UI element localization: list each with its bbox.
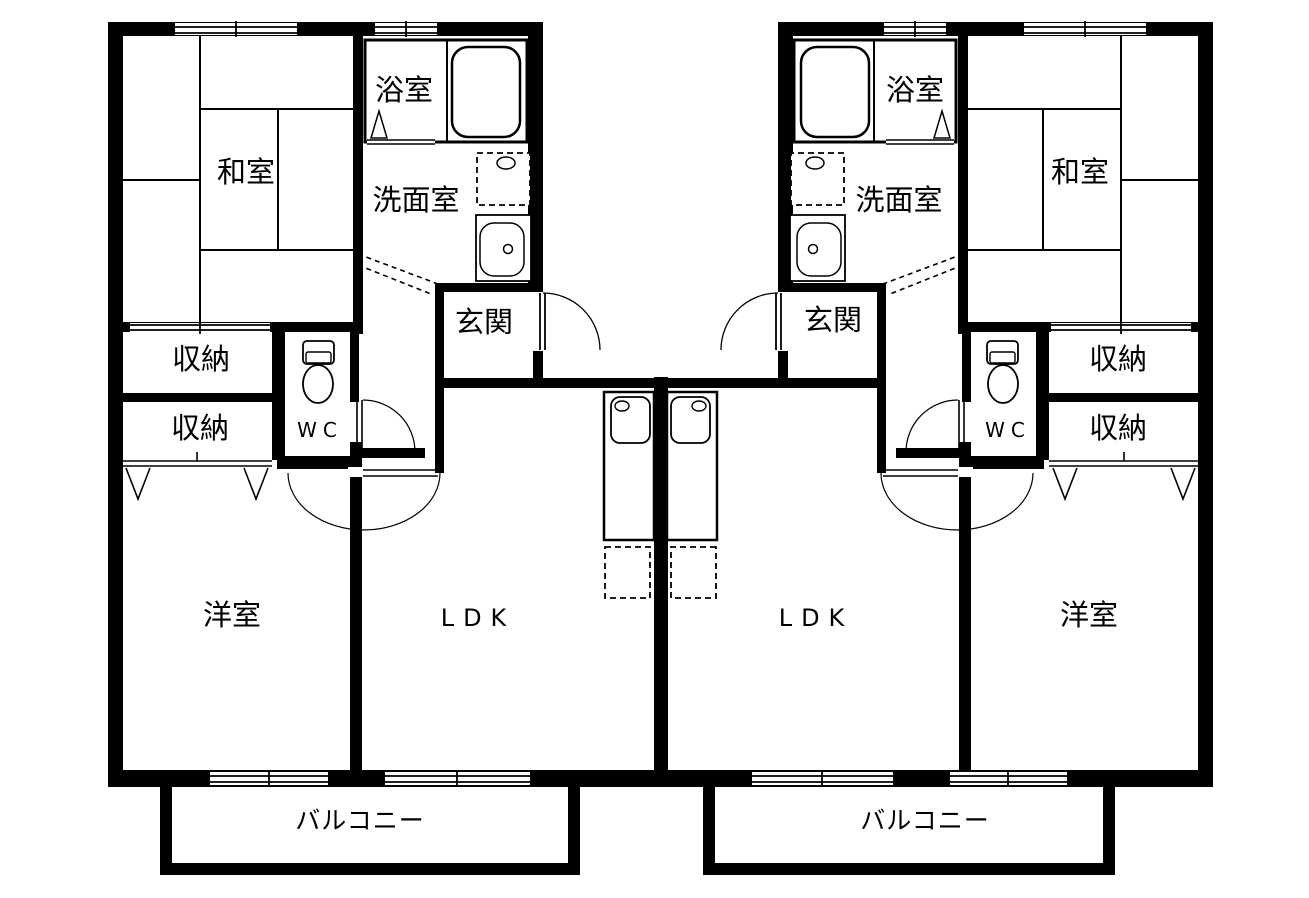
party-wall (654, 377, 668, 787)
room-label-ldk-right: LDK (779, 604, 854, 632)
room-label-storage-upper-left: 収納 (172, 342, 230, 376)
room-label-western-right: 洋室 (1060, 598, 1118, 632)
room-label-storage-upper-right: 収納 (1089, 342, 1147, 376)
room-label-storage-lower-left: 収納 (171, 411, 229, 445)
room-label-washitsu-right: 和室 (1051, 155, 1109, 189)
room-label-balcony-left: バルコニー (295, 806, 425, 835)
room-label-washroom-right: 洗面室 (855, 183, 942, 217)
room-label-western-left: 洋室 (203, 598, 261, 632)
room-label-ldk-left: LDK (441, 604, 516, 632)
room-label-entrance-right: 玄関 (804, 303, 862, 337)
room-label-storage-lower-right: 収納 (1089, 411, 1147, 445)
room-label-wc-right: WC (985, 418, 1031, 442)
room-label-washitsu-left: 和室 (217, 155, 275, 189)
floor-plan: 和室 浴室 洗面室 玄関 収納 収納 WC 洋室 LDK バルコニー 和室 浴室… (0, 0, 1309, 898)
room-label-balcony-right: バルコニー (860, 806, 990, 835)
room-label-washroom-left: 洗面室 (372, 183, 459, 217)
room-label-bathroom-left: 浴室 (375, 73, 433, 107)
floor-plan-canvas: 和室 浴室 洗面室 玄関 収納 収納 WC 洋室 LDK バルコニー 和室 浴室… (0, 0, 1309, 898)
room-label-wc-left: WC (297, 418, 343, 442)
room-label-entrance-left: 玄関 (455, 305, 513, 339)
room-label-bathroom-right: 浴室 (886, 73, 944, 107)
